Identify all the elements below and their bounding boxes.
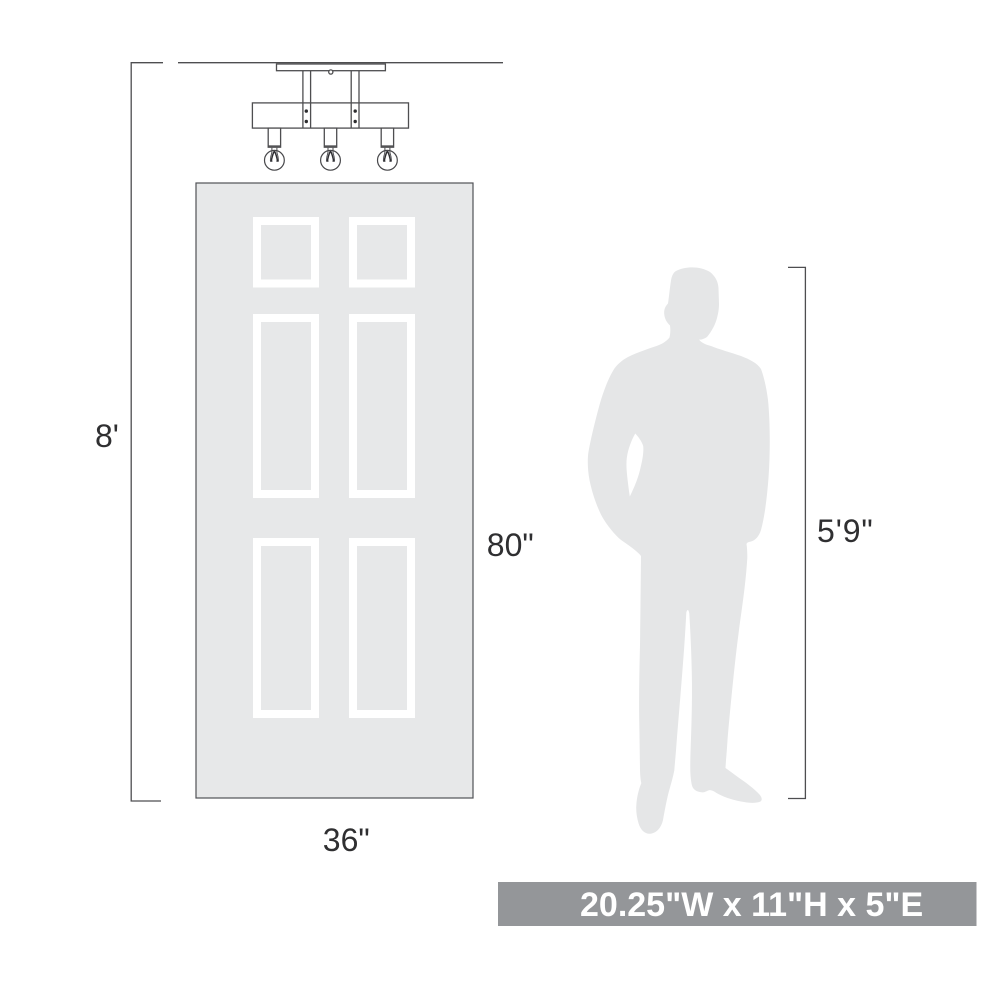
svg-text:80": 80"	[487, 527, 534, 563]
svg-text:36": 36"	[323, 822, 370, 858]
svg-text:20.25"W x 11"H x 5"E: 20.25"W x 11"H x 5"E	[580, 886, 923, 924]
svg-text:8': 8'	[95, 418, 119, 454]
svg-text:5'9": 5'9"	[817, 513, 874, 549]
